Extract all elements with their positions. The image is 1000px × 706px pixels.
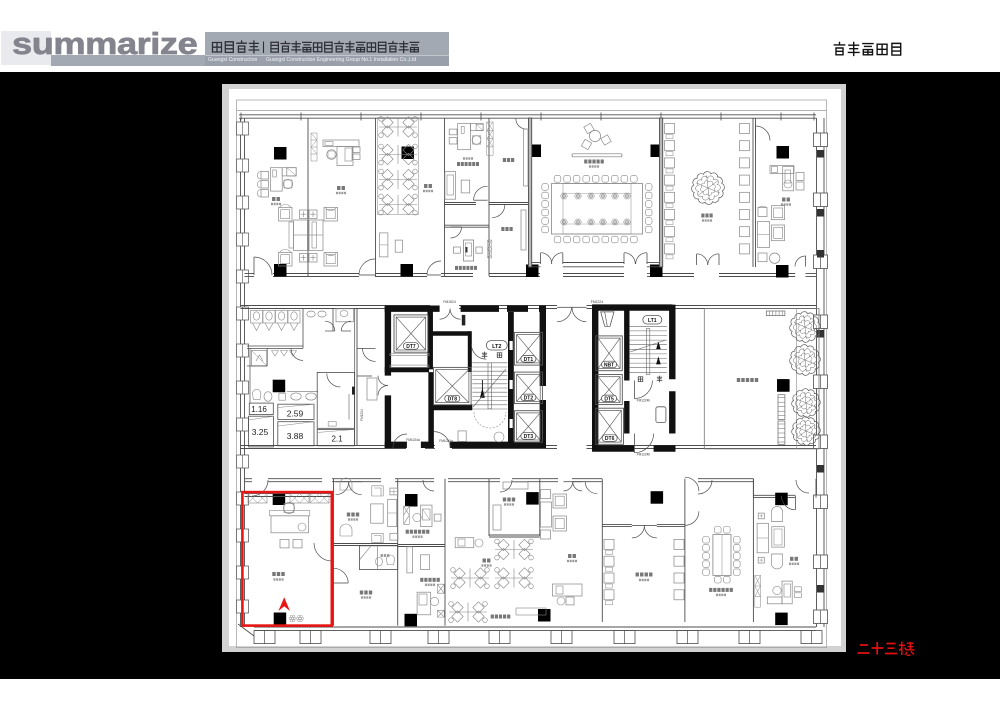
svg-text:2.1: 2.1: [331, 435, 343, 444]
svg-text:DT2: DT2: [524, 395, 534, 401]
svg-text:DT7: DT7: [406, 344, 416, 350]
svg-text:LT1: LT1: [648, 318, 657, 324]
svg-text:LT2: LT2: [492, 344, 501, 350]
svg-text:FM1024a: FM1024a: [406, 438, 420, 442]
svg-text:FM1024a: FM1024a: [439, 439, 453, 443]
svg-text:3.25: 3.25: [252, 427, 269, 437]
svg-text:FM1524: FM1524: [443, 300, 456, 304]
svg-text:3.88: 3.88: [287, 431, 304, 441]
svg-text:NBT: NBT: [604, 362, 614, 368]
svg-text:2.59: 2.59: [287, 409, 304, 419]
svg-text:FM1224b: FM1224b: [637, 453, 651, 457]
svg-text:DT3: DT3: [524, 434, 534, 440]
svg-text:DT8: DT8: [448, 397, 458, 403]
svg-text:FM1524: FM1524: [360, 409, 364, 421]
svg-text:FM1224: FM1224: [591, 300, 604, 304]
svg-text:DT6: DT6: [605, 436, 615, 442]
svg-text:DT1: DT1: [524, 357, 534, 363]
svg-text:1.16: 1.16: [251, 405, 267, 414]
svg-text:DT5: DT5: [604, 396, 614, 402]
svg-text:FM1224b: FM1224b: [637, 399, 651, 403]
